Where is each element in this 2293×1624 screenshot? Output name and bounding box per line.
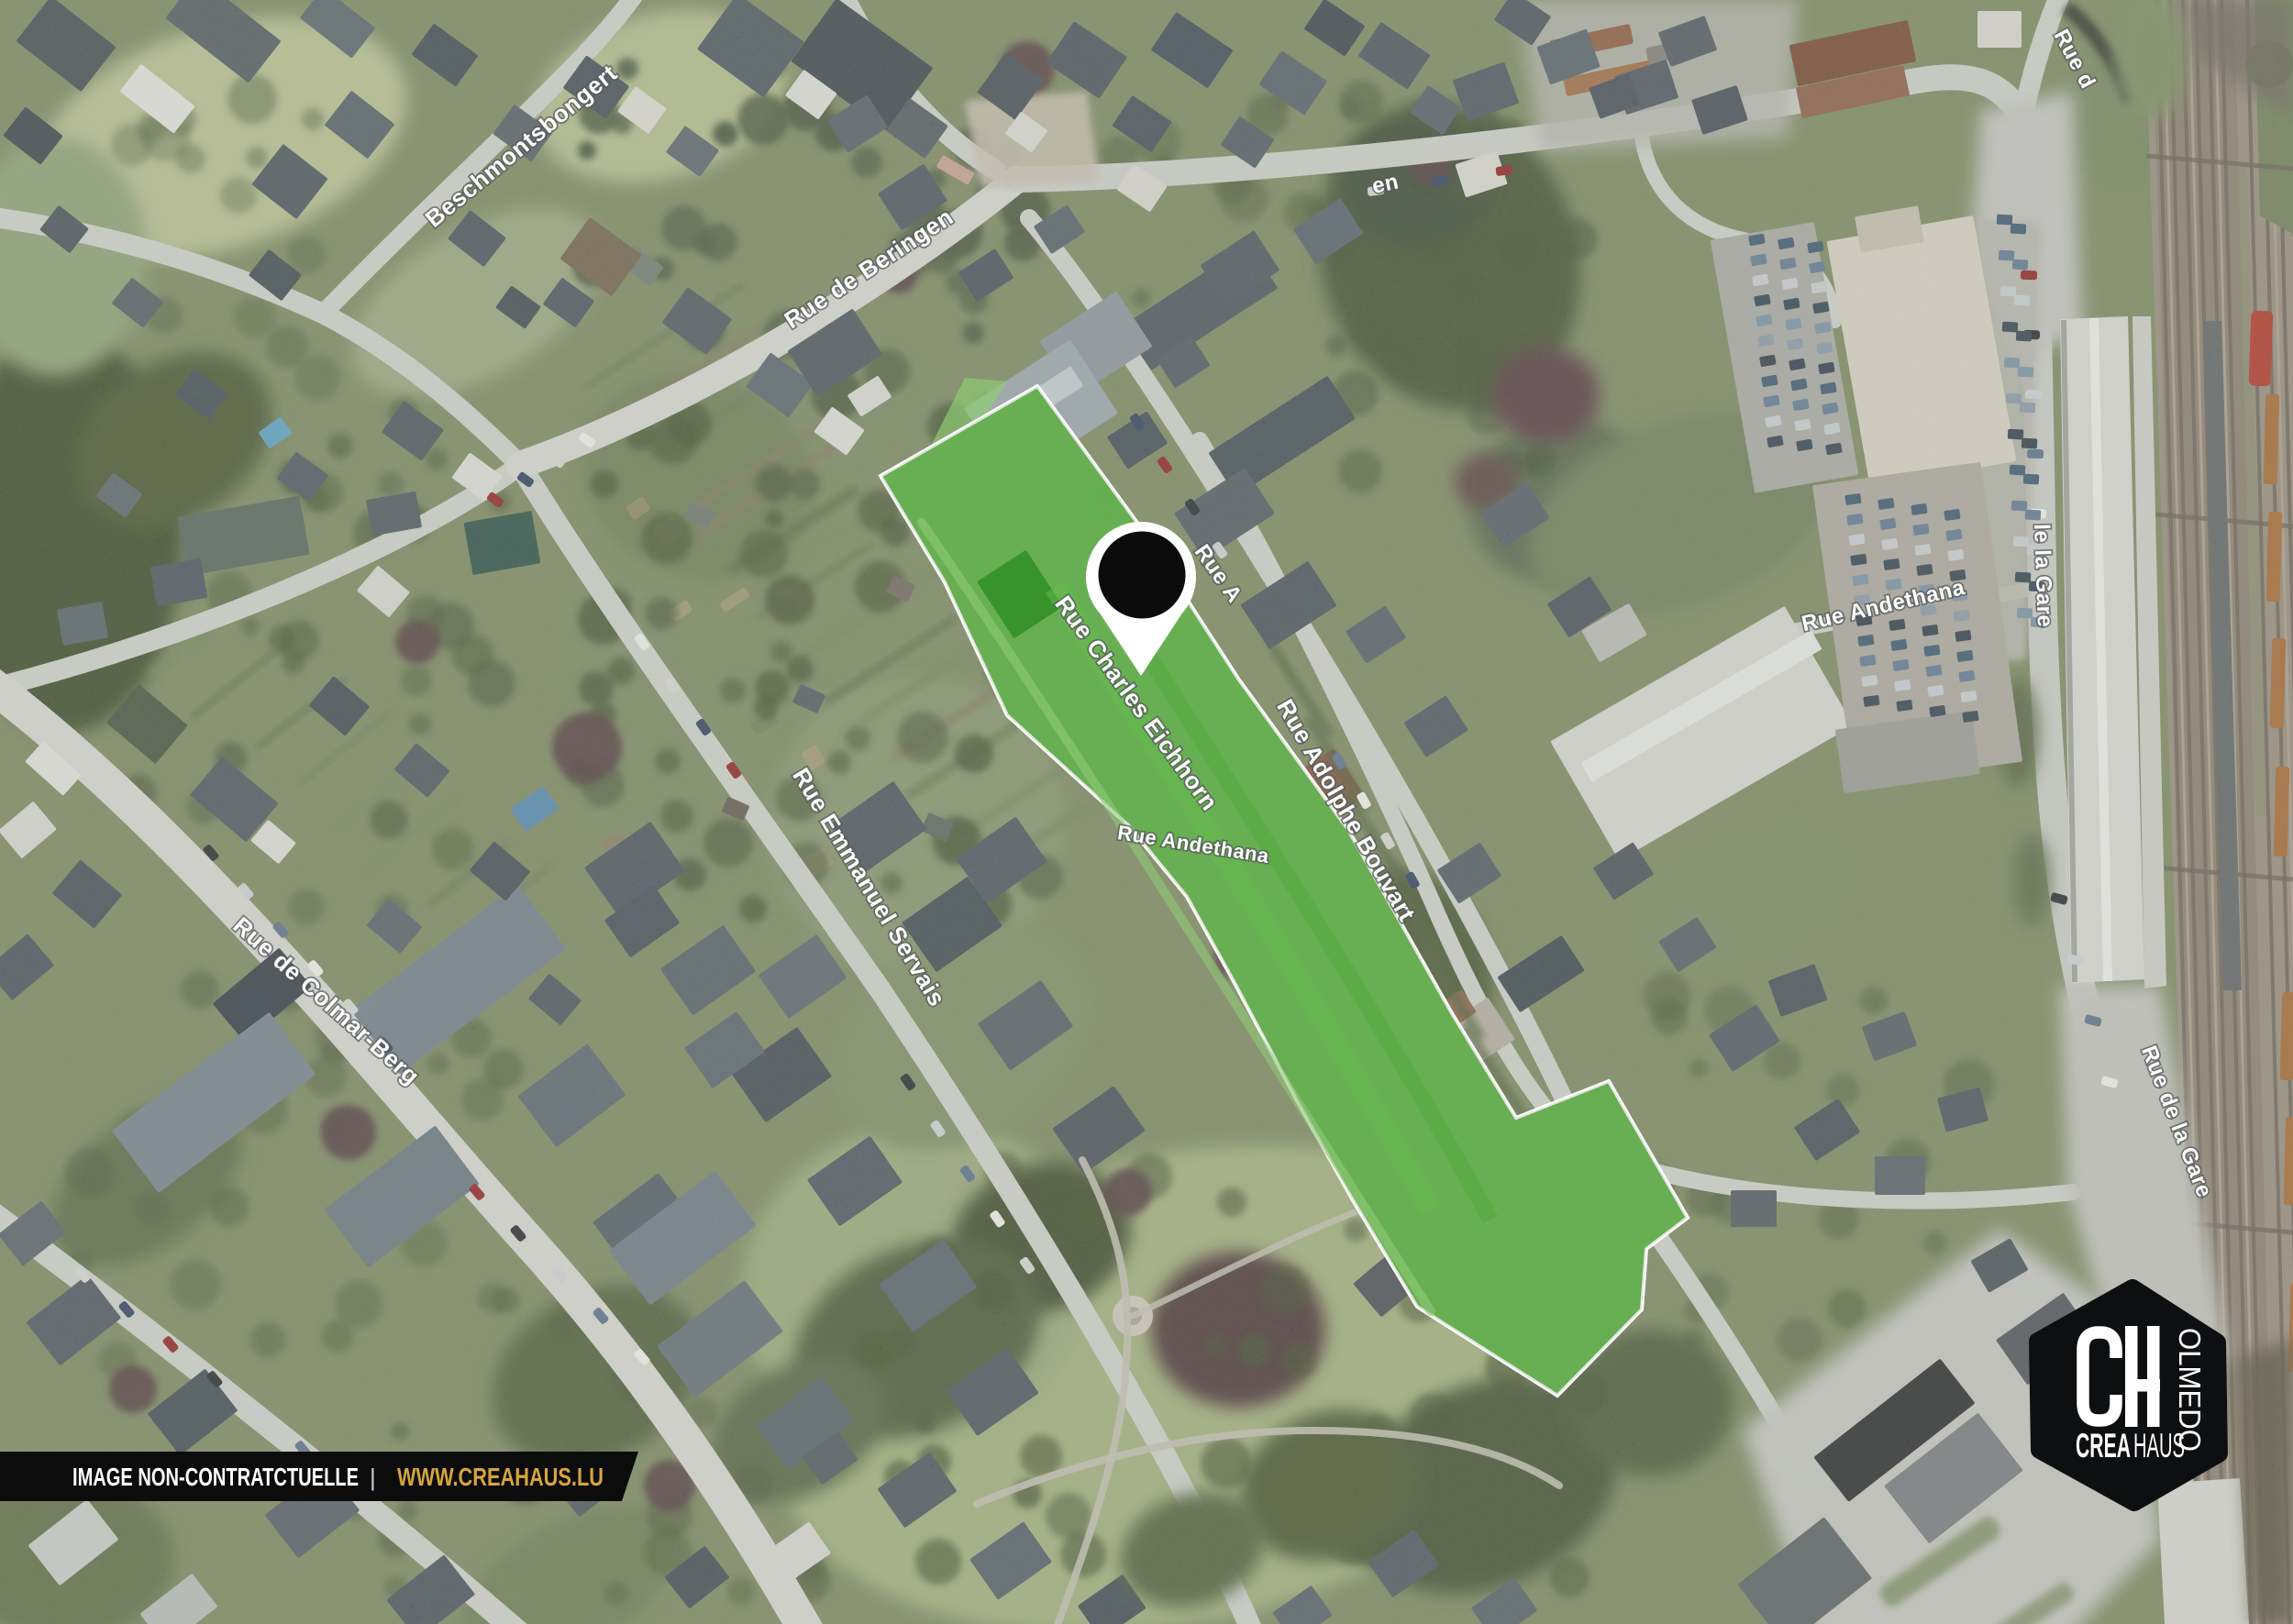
svg-text:WWW.CREAHAUS.LU: WWW.CREAHAUS.LU — [397, 1463, 604, 1491]
svg-text:IMAGE NON-CONTRATCTUELLE: IMAGE NON-CONTRATCTUELLE — [72, 1463, 359, 1491]
svg-text:|: | — [370, 1464, 376, 1491]
svg-text:le la Gare: le la Gare — [2029, 524, 2057, 628]
svg-text:CREA: CREA — [2076, 1427, 2131, 1464]
svg-text:OLMEDO: OLMEDO — [2173, 1328, 2207, 1452]
